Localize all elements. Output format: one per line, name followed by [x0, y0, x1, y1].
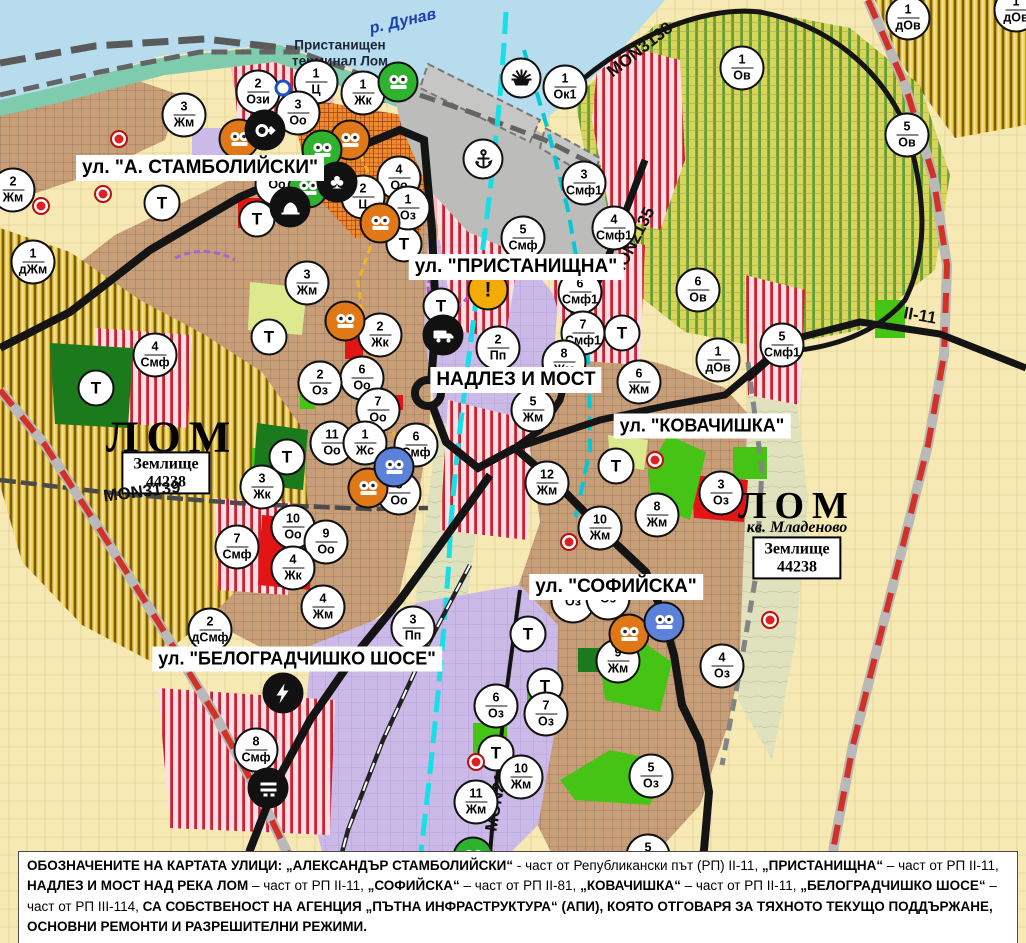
- zone-marker: 6Оз: [474, 684, 519, 729]
- zone-marker-code: Жк: [371, 335, 389, 349]
- red-dot-marker: [110, 130, 128, 148]
- zone-marker-code: дОв: [705, 360, 730, 374]
- street-label: ул. "ПРИСТАНИЩНА": [409, 254, 624, 280]
- zone-marker: 3Оз: [699, 471, 744, 516]
- street-label: ул. "БЕЛОГРАДЧИШКО ШОСЕ": [152, 647, 442, 672]
- zone-marker-code: Ов: [733, 68, 750, 82]
- zone-marker: 3Пп: [391, 606, 436, 651]
- poi-masks-icon: [644, 602, 685, 643]
- zone-marker-code: Жм: [466, 802, 487, 816]
- street-label: ул. "А. СТАМБОЛИЙСКИ": [76, 155, 324, 181]
- zone-marker-number: 1: [731, 54, 753, 68]
- zone-marker-code: Жк: [354, 93, 372, 107]
- zone-marker: 1дОв: [994, 0, 1026, 33]
- transport-terrain-marker: Т: [251, 319, 288, 356]
- zone-marker-number: 1: [352, 79, 374, 93]
- zone-marker-code: Ц: [311, 82, 320, 96]
- transport-terrain-marker: Т: [510, 616, 547, 653]
- poi-masks-icon: [360, 203, 401, 244]
- zone-marker-code: Пп: [405, 628, 422, 642]
- poi-anchor-icon: [463, 139, 504, 180]
- zone-marker: 1дОв: [886, 0, 931, 41]
- zone-marker-number: 10: [510, 763, 532, 777]
- zone-marker-number: 7: [226, 533, 248, 547]
- zone-marker-number: 1: [397, 194, 419, 208]
- zone-marker-code: Жм: [608, 661, 629, 675]
- poi-masks-icon: [325, 301, 366, 342]
- zone-marker: 3Смф1: [562, 161, 607, 206]
- zone-marker-code: Оо: [289, 113, 306, 127]
- zone-marker-code: Жм: [174, 115, 195, 129]
- zone-marker-code: дОв: [1003, 10, 1026, 24]
- zone-marker-number: 6: [628, 368, 650, 382]
- transport-terrain-marker: Т: [598, 448, 635, 485]
- zone-marker-number: 3: [251, 473, 273, 487]
- legend-street-name: „ПРИСТАНИЩНА“: [762, 858, 883, 873]
- legend-street-name: „БЕЛОГРАДЧИШКО ШОСЕ“: [800, 878, 985, 893]
- zone-marker-number: 1: [897, 4, 919, 18]
- zone-marker-code: Жм: [523, 410, 544, 424]
- zone-marker-number: 12: [536, 469, 558, 483]
- legend-road-ref: – част от РП II-11,: [248, 878, 367, 893]
- zone-marker: 2Оз: [298, 361, 343, 406]
- zone-marker: 12Жм: [525, 461, 570, 506]
- land-register-line2: 44238: [777, 558, 817, 575]
- transport-terrain-marker: Т: [144, 185, 181, 222]
- zone-marker-number: 4: [388, 164, 410, 178]
- zone-marker-number: 6: [687, 276, 709, 290]
- zone-marker-number: 5: [640, 762, 662, 776]
- zone-marker-number: 4: [711, 652, 733, 666]
- zone-marker-code: Жм: [297, 283, 318, 297]
- zone-marker-code: Ов: [689, 290, 706, 304]
- zone-marker-code: Смф1: [566, 183, 602, 197]
- zone-marker-number: 10: [282, 513, 304, 527]
- legend-road-ref: – част от РП II-11,: [681, 878, 800, 893]
- zone-marker-number: 2: [199, 616, 221, 630]
- zone-marker-code: Жс: [356, 443, 374, 457]
- poi-bars-icon: [248, 768, 289, 809]
- zone-marker: 1Ов: [720, 46, 765, 91]
- red-dot-marker: [94, 185, 112, 203]
- zone-marker: 11Жм: [454, 780, 499, 825]
- zone-marker-code: Смф: [140, 355, 169, 369]
- zone-marker: 4Жк: [271, 546, 316, 591]
- poi-masks-icon: [374, 447, 415, 488]
- street-label: НАДЛЕЗ И МОСТ: [430, 367, 601, 393]
- zone-marker-number: 11: [321, 429, 343, 443]
- red-dot-marker: [761, 611, 779, 629]
- zone-marker: 4Смф1: [592, 206, 637, 251]
- map-overlay: 2Ози1Ц3Оо1Жк3Жм2Жм1дЖм4ОоОо2Ц1Оз3Жм1Ок13…: [0, 0, 1026, 943]
- legend-street-name: СА СОБСТВЕНОСТ НА АГЕНЦИЯ „ПЪТНА ИНФРАСТ…: [27, 899, 993, 934]
- zone-marker-number: 7: [367, 396, 389, 410]
- zone-marker: 8Смф: [234, 728, 279, 773]
- zone-marker-code: Оо: [323, 443, 340, 457]
- legend-street-name: ОБОЗНАЧЕНИТЕ НА КАРТАТА УЛИЦИ: „АЛЕКСАНД…: [27, 858, 513, 873]
- zone-marker-code: Жм: [3, 190, 24, 204]
- zone-marker: 5Оз: [629, 754, 674, 799]
- zone-marker-code: дСмф: [192, 630, 229, 644]
- poi-masks-icon: [378, 62, 419, 103]
- zone-marker: 5Жм: [511, 388, 556, 433]
- zone-marker-code: Смф: [222, 547, 251, 561]
- zone-marker-number: 9: [315, 528, 337, 542]
- street-label: ул. "КОВАЧИШКА": [614, 414, 791, 439]
- zone-marker-code: Оз: [643, 776, 659, 790]
- zone-marker-number: 3: [573, 169, 595, 183]
- zone-marker: 3Жм: [162, 93, 207, 138]
- red-dot-marker: [467, 753, 485, 771]
- zone-marker-code: Жм: [537, 483, 558, 497]
- port-terminal-line1: Пристанищен: [294, 37, 385, 52]
- quarter-name-label: кв. Младеново: [747, 519, 848, 537]
- zone-marker-code: Жм: [590, 528, 611, 542]
- zone-marker-code: Смф1: [764, 345, 800, 359]
- zone-marker-number: 6: [485, 692, 507, 706]
- zone-marker-code: Оз: [714, 666, 730, 680]
- legend-road-ref: – част от РП II-81,: [460, 878, 580, 893]
- zone-marker-code: дОв: [895, 18, 920, 32]
- zone-marker-code: Оо: [284, 527, 301, 541]
- zone-marker-number: 5: [522, 396, 544, 410]
- zone-marker: 4Смф: [133, 333, 178, 378]
- zone-marker-code: Смф: [241, 750, 270, 764]
- zone-marker-code: Жк: [253, 487, 271, 501]
- zone-marker-number: 2: [309, 369, 331, 383]
- legend-street-name: НАДЛЕЗ И МОСТ НАД РЕКА ЛОМ: [27, 878, 248, 893]
- zone-marker-code: Смф1: [596, 228, 632, 242]
- zone-marker-number: 4: [312, 593, 334, 607]
- legend-street-name: „КОВАЧИШКА“: [580, 878, 681, 893]
- red-dot-marker: [32, 197, 50, 215]
- zone-marker-number: 5: [771, 331, 793, 345]
- zone-marker-number: 8: [553, 348, 575, 362]
- zoning-map: 2Ози1Ц3Оо1Жк3Жм2Жм1дЖм4ОоОо2Ц1Оз3Жм1Ок13…: [0, 0, 1026, 943]
- zone-marker-number: 3: [402, 614, 424, 628]
- zone-marker-number: 8: [245, 736, 267, 750]
- zone-marker-code: Оз: [488, 706, 504, 720]
- zone-marker-code: Смф: [508, 238, 537, 252]
- zone-marker-code: Ок1: [554, 87, 577, 101]
- zone-marker: 10Жм: [499, 755, 544, 800]
- legend-road-ref: – част от РП II-11,: [883, 858, 999, 873]
- zone-marker-code: Оз: [538, 714, 554, 728]
- zone-marker-code: Жм: [629, 382, 650, 396]
- zone-marker-code: Оз: [713, 493, 729, 507]
- zone-marker: 3Жм: [285, 261, 330, 306]
- zone-marker-code: Жм: [313, 607, 334, 621]
- transport-terrain-marker: Т: [604, 315, 641, 352]
- zone-marker-number: 4: [282, 554, 304, 568]
- legend-note: ОБОЗНАЧЕНИТЕ НА КАРТАТА УЛИЦИ: „АЛЕКСАНД…: [18, 851, 1018, 943]
- road-code-label: II-11: [902, 303, 938, 328]
- zone-marker-number: 4: [603, 214, 625, 228]
- zone-marker-number: 2: [369, 321, 391, 335]
- zone-marker-number: 6: [351, 364, 373, 378]
- zone-marker: 8Жм: [635, 493, 680, 538]
- poi-lightning-icon: [263, 673, 304, 714]
- zone-marker: 6Ов: [676, 268, 721, 313]
- land-register-line1: Землище: [133, 455, 198, 472]
- zone-marker-code: Ози: [246, 92, 270, 106]
- zone-marker: 2Ози: [236, 70, 281, 115]
- road-code-label: MON3139: [102, 477, 181, 506]
- zone-marker-number: 3: [287, 99, 309, 113]
- zone-marker: 4Жм: [301, 585, 346, 630]
- zone-marker: 4Оз: [700, 644, 745, 689]
- red-dot-marker: [560, 533, 578, 551]
- zone-marker-code: Оз: [400, 208, 416, 222]
- zone-marker-number: 11: [465, 788, 487, 802]
- zone-marker-number: 4: [144, 341, 166, 355]
- street-label: ул. "СОФИЙСКА": [529, 574, 703, 600]
- zone-marker: 2Жм: [0, 168, 36, 213]
- road-code-label: MON3138: [603, 18, 676, 81]
- zone-marker-code: Смф1: [562, 292, 598, 306]
- red-dot-marker: [646, 451, 664, 469]
- zone-marker-number: 7: [535, 700, 557, 714]
- zone-marker-code: Оо: [317, 542, 334, 556]
- zone-marker-number: 1: [707, 346, 729, 360]
- zone-marker: 2Пп: [476, 326, 521, 371]
- poi-arrow-icon: [245, 110, 286, 151]
- transport-terrain-marker: Т: [78, 370, 115, 407]
- land-register-box: Землище44238: [752, 536, 841, 579]
- poi-mound-icon: [270, 187, 311, 228]
- zone-marker-code: Жм: [647, 515, 668, 529]
- zone-marker: 7Смф: [215, 525, 260, 570]
- zone-marker-number: 5: [512, 224, 534, 238]
- zone-marker-number: 1: [354, 429, 376, 443]
- zone-marker-number: 1: [305, 68, 327, 82]
- zone-marker-code: Жк: [284, 568, 302, 582]
- zone-marker-number: 10: [589, 514, 611, 528]
- zone-marker-number: 3: [710, 479, 732, 493]
- zone-marker: 3Жк: [240, 465, 285, 510]
- zone-marker-code: Пп: [490, 348, 507, 362]
- zone-marker-number: 1: [554, 73, 576, 87]
- legend-road-ref: - част от Републикански път (РП) II-11,: [513, 858, 762, 873]
- zone-marker-number: 3: [173, 101, 195, 115]
- zone-marker-code: Ов: [898, 135, 915, 149]
- zone-marker: 7Оз: [524, 692, 569, 737]
- zone-marker: 5Ов: [885, 113, 930, 158]
- legend-street-name: „СОФИЙСКА“: [368, 878, 460, 893]
- poi-truck-icon: [423, 315, 464, 356]
- zone-marker: 6Жм: [617, 360, 662, 405]
- poi-sun-icon: [501, 58, 542, 99]
- zone-marker: 1дЖм: [11, 240, 56, 285]
- zone-marker: 10Жм: [578, 506, 623, 551]
- zone-marker-code: дЖм: [19, 262, 47, 276]
- zone-marker-number: 1: [22, 248, 44, 262]
- zone-marker-number: 2: [247, 78, 269, 92]
- land-register-line1: Землище: [764, 540, 829, 557]
- zone-marker-number: 5: [896, 121, 918, 135]
- zone-marker-number: 6: [405, 431, 427, 445]
- zone-marker-number: 2: [2, 176, 24, 190]
- zone-marker-number: 3: [296, 269, 318, 283]
- zone-marker-number: 7: [572, 319, 594, 333]
- blue-dot-marker: [275, 80, 292, 97]
- zone-marker-code: Жм: [511, 777, 532, 791]
- zone-marker: 1Ок1: [543, 65, 588, 110]
- zone-marker-code: Оо: [390, 493, 407, 507]
- zone-marker: 5Смф1: [760, 323, 805, 368]
- zone-marker-number: 1: [1005, 0, 1026, 10]
- zone-marker-number: 8: [646, 501, 668, 515]
- zone-marker: 1дОв: [696, 338, 741, 383]
- zone-marker-code: Оз: [312, 383, 328, 397]
- zone-marker-number: 2: [487, 334, 509, 348]
